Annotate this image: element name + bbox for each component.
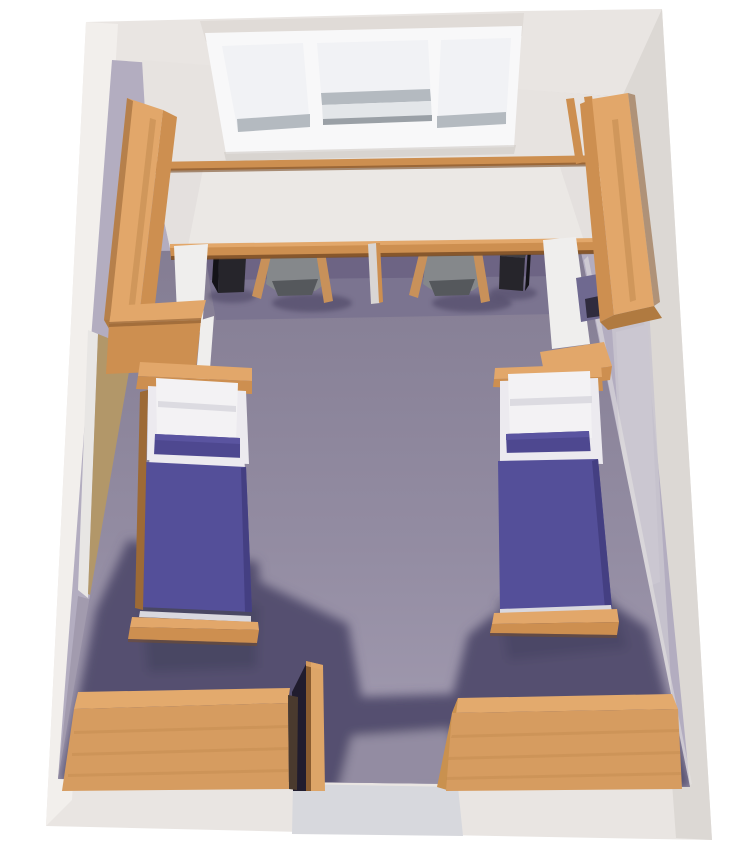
chair-left-shadow — [272, 294, 352, 312]
room-render-svg — [0, 0, 750, 864]
dresser-left-front — [62, 703, 289, 791]
dorm-room-rendering — [0, 0, 750, 864]
waste-bin-left — [218, 257, 246, 293]
dresser-left-end-dark — [288, 695, 298, 790]
desk-chair-right-seat — [429, 279, 475, 296]
open-door-edge — [306, 661, 311, 791]
desk-chair-left-seat — [272, 279, 318, 296]
chair-right-shadow — [432, 294, 512, 312]
desk-surface — [152, 160, 612, 248]
waste-bin-right — [499, 256, 525, 291]
bed-left-spread — [139, 462, 252, 612]
doorway-threshold — [292, 784, 463, 836]
bed-right-footboard — [490, 622, 619, 635]
